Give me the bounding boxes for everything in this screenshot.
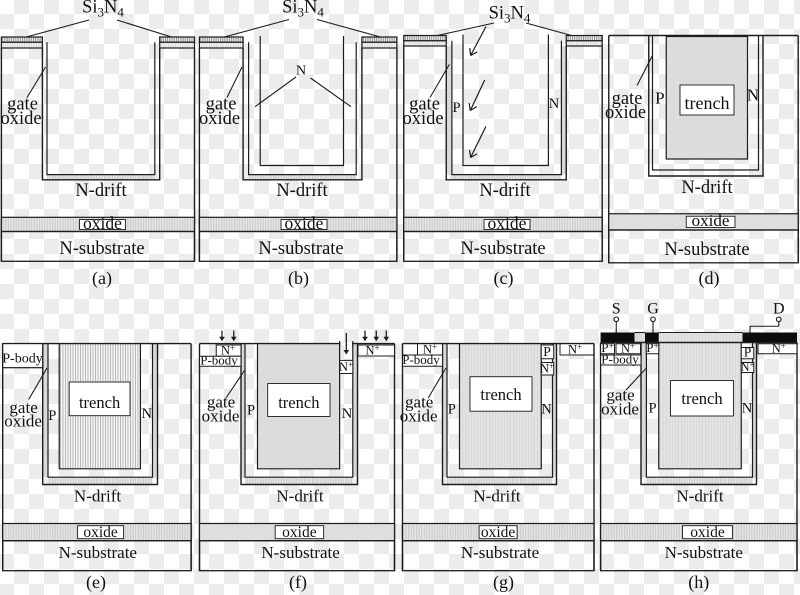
svg-text:N: N: [296, 64, 306, 79]
svg-text:N-substrate: N-substrate: [261, 543, 339, 562]
svg-text:N: N: [541, 402, 552, 418]
svg-text:P: P: [744, 345, 752, 360]
svg-text:P-body: P-body: [601, 352, 639, 367]
svg-text:N-drift: N-drift: [473, 487, 520, 506]
svg-text:oxide: oxide: [285, 213, 324, 233]
svg-text:trench: trench: [685, 93, 730, 113]
svg-text:trench: trench: [278, 393, 320, 412]
svg-text:S: S: [612, 301, 621, 318]
svg-text:(c): (c): [494, 268, 514, 289]
svg-text:oxide: oxide: [202, 407, 240, 426]
svg-text:oxide: oxide: [83, 213, 122, 233]
svg-text:N-drift: N-drift: [676, 487, 723, 506]
svg-text:P-body: P-body: [200, 353, 238, 368]
svg-text:P: P: [655, 89, 664, 108]
svg-text:P: P: [448, 402, 456, 418]
svg-text:Si3N4: Si3N4: [82, 0, 124, 20]
svg-text:oxide: oxide: [282, 524, 317, 541]
svg-text:N-drift: N-drift: [479, 181, 531, 201]
svg-text:oxide: oxide: [605, 103, 646, 123]
svg-text:trench: trench: [681, 389, 723, 408]
svg-text:Si3N4: Si3N4: [489, 4, 531, 26]
svg-text:P-body: P-body: [402, 352, 440, 367]
svg-text:N: N: [747, 86, 759, 105]
svg-text:oxide: oxide: [601, 399, 639, 418]
svg-text:(a): (a): [92, 268, 112, 289]
svg-text:P-body: P-body: [2, 352, 42, 367]
svg-text:(f): (f): [289, 572, 307, 593]
svg-text:oxide: oxide: [481, 524, 516, 541]
svg-text:N-drift: N-drift: [276, 181, 328, 201]
svg-text:oxide: oxide: [0, 109, 41, 129]
svg-text:N-substrate: N-substrate: [460, 239, 545, 259]
svg-text:N: N: [742, 401, 753, 417]
svg-text:oxide: oxide: [83, 524, 118, 541]
svg-text:N-drift: N-drift: [75, 181, 127, 201]
svg-text:(d): (d): [699, 268, 720, 289]
svg-text:N: N: [549, 96, 560, 112]
svg-text:(g): (g): [493, 572, 514, 593]
svg-text:N-substrate: N-substrate: [664, 240, 749, 260]
svg-text:P: P: [48, 408, 56, 424]
svg-text:P: P: [452, 100, 460, 116]
svg-text:oxide: oxide: [400, 407, 438, 426]
svg-text:oxide: oxide: [692, 211, 730, 230]
svg-text:Si3N4: Si3N4: [282, 0, 324, 20]
svg-text:D: D: [773, 301, 785, 318]
svg-text:N-substrate: N-substrate: [59, 543, 137, 562]
svg-text:N-substrate: N-substrate: [258, 239, 343, 259]
svg-text:(b): (b): [288, 268, 309, 289]
svg-text:N-substrate: N-substrate: [59, 239, 144, 259]
svg-text:P: P: [543, 344, 551, 359]
svg-text:N-substrate: N-substrate: [665, 543, 743, 562]
svg-text:oxide: oxide: [402, 109, 443, 129]
svg-text:oxide: oxide: [488, 213, 527, 233]
svg-text:trench: trench: [480, 385, 522, 404]
svg-text:(e): (e): [86, 572, 106, 593]
svg-text:(h): (h): [688, 572, 709, 593]
svg-text:N: N: [142, 406, 153, 422]
svg-text:P: P: [648, 400, 656, 416]
svg-text:oxide: oxide: [199, 109, 240, 129]
svg-text:N-substrate: N-substrate: [461, 543, 539, 562]
svg-text:P: P: [247, 403, 255, 419]
svg-text:G: G: [647, 301, 659, 318]
svg-text:oxide: oxide: [4, 412, 42, 431]
svg-text:N-drift: N-drift: [276, 487, 323, 506]
svg-text:N: N: [342, 406, 353, 422]
svg-text:oxide: oxide: [690, 524, 725, 541]
svg-text:N-drift: N-drift: [74, 487, 121, 506]
svg-text:N-drift: N-drift: [681, 178, 733, 198]
svg-text:trench: trench: [79, 393, 121, 412]
